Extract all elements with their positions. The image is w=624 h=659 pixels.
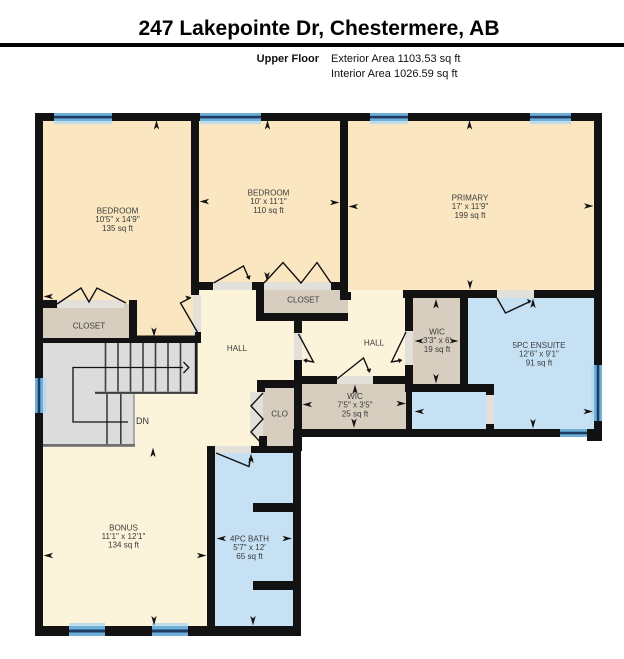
svg-text:PRIMARY: PRIMARY [452, 193, 489, 202]
svg-text:WIC: WIC [429, 328, 445, 337]
svg-text:199 sq ft: 199 sq ft [454, 211, 486, 220]
svg-text:11'1" x 12'1": 11'1" x 12'1" [102, 532, 146, 541]
svg-text:134 sq ft: 134 sq ft [108, 541, 140, 550]
svg-text:WIC: WIC [347, 392, 363, 401]
svg-text:DN: DN [136, 416, 149, 426]
svg-text:135 sq ft: 135 sq ft [102, 224, 134, 233]
svg-text:19 sq ft: 19 sq ft [424, 345, 451, 354]
svg-text:CLO: CLO [271, 410, 288, 419]
svg-text:CLOSET: CLOSET [287, 296, 319, 305]
svg-text:91 sq ft: 91 sq ft [526, 358, 553, 367]
svg-text:12'6" x 9'1": 12'6" x 9'1" [519, 350, 559, 359]
svg-text:65 sq ft: 65 sq ft [236, 552, 263, 561]
svg-text:HALL: HALL [364, 338, 385, 347]
svg-text:BEDROOM: BEDROOM [248, 189, 290, 198]
svg-text:3'3" x 6': 3'3" x 6' [423, 336, 451, 345]
svg-text:CLOSET: CLOSET [73, 322, 105, 331]
svg-text:25 sq ft: 25 sq ft [342, 409, 369, 418]
svg-text:110 sq ft: 110 sq ft [253, 206, 284, 215]
svg-text:10'5" x 14'9": 10'5" x 14'9" [95, 215, 140, 224]
svg-text:5'7" x 12': 5'7" x 12' [233, 543, 266, 552]
svg-text:7'5" x 3'5": 7'5" x 3'5" [337, 401, 373, 410]
svg-text:4PC BATH: 4PC BATH [230, 535, 269, 544]
svg-text:10' x 11'1": 10' x 11'1" [250, 197, 287, 206]
svg-text:17' x 11'9": 17' x 11'9" [452, 202, 489, 211]
svg-text:5PC ENSUITE: 5PC ENSUITE [512, 341, 566, 350]
svg-text:BEDROOM: BEDROOM [97, 207, 139, 216]
svg-text:HALL: HALL [227, 344, 248, 353]
svg-text:BONUS: BONUS [109, 523, 138, 532]
